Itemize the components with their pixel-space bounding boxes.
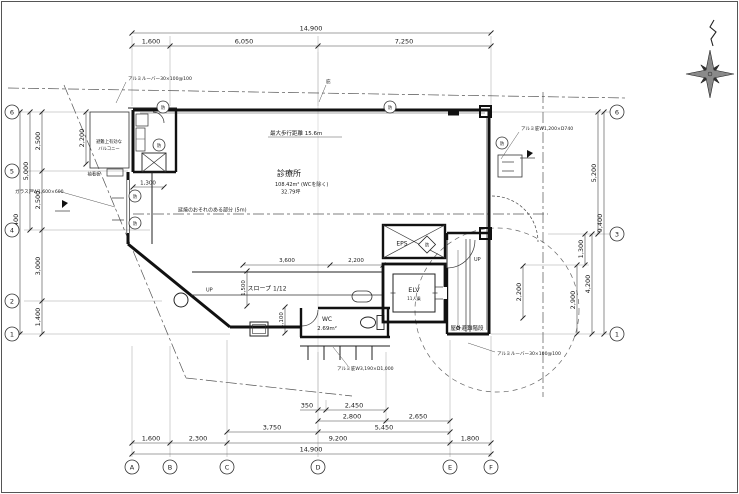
grid-bubbles: A B C D E F 6 5 4 2 1 6 3 1 bbox=[5, 105, 624, 474]
sink-basin bbox=[137, 116, 144, 123]
grid-bubble-b: B bbox=[168, 463, 172, 471]
wc-area: 2.69m² bbox=[317, 325, 337, 332]
grid-bubble-l5: 5 bbox=[10, 167, 14, 175]
dimension-left: 2,500 2,500 3,000 1,400 5,000 9,400 2,20… bbox=[12, 110, 89, 337]
cabinet bbox=[136, 128, 145, 151]
dim-top-total: 14,900 bbox=[300, 25, 323, 33]
wc-door-swing bbox=[302, 310, 318, 326]
glass-door-label: ガラス戸W1,600×600 bbox=[15, 188, 64, 195]
dim-l-2500a: 2,500 bbox=[34, 132, 42, 151]
exterior-walls bbox=[127, 106, 491, 334]
dim-b-9200: 9,200 bbox=[329, 435, 348, 443]
dim-b-2450: 2,450 bbox=[345, 402, 364, 410]
fire-mark: 防 bbox=[133, 220, 138, 227]
up-ramp-label: UP bbox=[206, 288, 213, 294]
dim-ramp-1500: 1,500 bbox=[241, 280, 247, 296]
dim-b-total: 14,900 bbox=[300, 446, 323, 454]
handrail bbox=[352, 291, 372, 302]
grid-bubble-l2: 2 bbox=[10, 297, 14, 305]
fire-mark: 防 bbox=[500, 140, 505, 147]
fire-mark: 防 bbox=[161, 104, 166, 111]
dim-top-1: 1,600 bbox=[142, 38, 161, 46]
exterior-door-swing bbox=[492, 196, 538, 242]
fire-mark: 防 bbox=[133, 193, 138, 200]
dim-b-2800: 2,800 bbox=[343, 413, 362, 421]
wc-room: WC 2.69m² bbox=[300, 308, 390, 337]
sleeve-sign-label: 袖看板 bbox=[88, 171, 102, 178]
grid-bubble-e: E bbox=[448, 463, 452, 471]
dim-top-2: 6,050 bbox=[235, 38, 254, 46]
door-swing bbox=[153, 112, 164, 123]
max-walking-label: 最大歩行距離 15.6m bbox=[270, 129, 322, 137]
dim-r-total: 9,400 bbox=[596, 214, 604, 233]
ramp-label: スロープ 1/12 bbox=[247, 286, 286, 293]
extension-lines bbox=[19, 36, 610, 457]
dim-b-1800: 1,800 bbox=[461, 435, 480, 443]
dimension-bottom: 350 2,450 2,800 2,650 3,750 5,450 1,600 … bbox=[130, 402, 494, 457]
dim-b-3750: 3,750 bbox=[263, 424, 282, 432]
clinic-area: 108.42m² (WCを除く) bbox=[275, 181, 328, 188]
dim-b-1600: 1,600 bbox=[142, 435, 161, 443]
grid-bubble-l4: 4 bbox=[10, 226, 14, 234]
round-column bbox=[174, 293, 188, 307]
dim-l-1400: 1,400 bbox=[34, 308, 42, 327]
dim-b-350: 350 bbox=[301, 402, 313, 410]
grid-bubble-r6: 6 bbox=[615, 108, 619, 116]
dim-l-5000: 5,000 bbox=[22, 162, 30, 181]
wc-label: WC bbox=[322, 316, 332, 323]
fire-spread-label: 延焼のおそれのある部分 (5m) bbox=[178, 207, 247, 214]
grid-bubble-a: A bbox=[130, 463, 135, 471]
floor-plan-drawing: 14,900 1,600 6,050 7,250 350 2,450 2,800… bbox=[0, 0, 739, 494]
dim-b-2650: 2,650 bbox=[409, 413, 428, 421]
elevator-label: ELV bbox=[408, 286, 420, 294]
dim-r-5200: 5,200 bbox=[590, 164, 598, 183]
sleeve-sign-symbol bbox=[107, 169, 123, 176]
eps-label: EPS bbox=[396, 241, 407, 248]
sheet-border bbox=[2, 2, 738, 493]
grid-bubble-f: F bbox=[489, 463, 493, 471]
floor-plan-sheet: 14,900 1,600 6,050 7,250 350 2,450 2,800… bbox=[0, 0, 739, 494]
balcony-label-1: 避難上有効な bbox=[96, 138, 122, 145]
grid-bubble-d: D bbox=[315, 463, 320, 471]
toilet-bowl bbox=[361, 317, 376, 328]
dim-porch-1100: 1,100 bbox=[279, 312, 285, 328]
dimension-top: 14,900 1,600 6,050 7,250 bbox=[130, 25, 494, 49]
grid-bubble-c: C bbox=[225, 463, 230, 471]
clinic-room: 診療所 108.42m² (WCを除く) 32.79坪 bbox=[275, 168, 328, 196]
grid-bubble-r3: 3 bbox=[615, 230, 619, 238]
turning-circle bbox=[415, 228, 579, 392]
dim-r-4200: 4,200 bbox=[584, 275, 592, 294]
canopy-east-label: アルミ庇W1,200×D740 bbox=[521, 125, 573, 132]
fire-mark: 防 bbox=[425, 242, 430, 249]
dim-b-2300: 2,300 bbox=[189, 435, 208, 443]
elevator: ELV 11人乗 bbox=[383, 264, 445, 322]
evacuation-balcony: 避難上有効な バルコニー 袖看板 bbox=[88, 112, 129, 178]
dim-stair-2200: 2,200 bbox=[515, 283, 523, 302]
elevator-capacity: 11人乗 bbox=[407, 295, 421, 302]
grid-bubble-l6: 6 bbox=[10, 108, 14, 116]
sink bbox=[136, 114, 148, 126]
clinic-tsubo: 32.79坪 bbox=[281, 189, 300, 196]
stair-door-swing bbox=[447, 240, 475, 268]
section-mark bbox=[527, 150, 533, 158]
eps-room: EPS 防 bbox=[383, 225, 445, 258]
louver-bottom-label: アルミルーバー30×100@100 bbox=[497, 351, 561, 357]
dim-top-3: 7,250 bbox=[395, 38, 414, 46]
section-mark-west bbox=[55, 200, 70, 211]
dim-ramp-2200: 2,200 bbox=[348, 258, 364, 264]
dim-l-3000: 3,000 bbox=[34, 257, 42, 276]
dim-r-2900: 2,900 bbox=[569, 291, 577, 310]
up-stairs-label: UP bbox=[474, 257, 481, 263]
dim-b-5450: 5,450 bbox=[375, 424, 394, 432]
dimension-right: 2,900 1,300 4,200 5,200 9,400 2,200 bbox=[515, 110, 607, 337]
dim-ramp-3600: 3,600 bbox=[279, 258, 295, 264]
dimension-inner: 1,300 3,600 2,200 1,500 1,100 bbox=[131, 181, 386, 336]
north-compass-icon bbox=[686, 14, 734, 98]
outdoor-stairs: UP 屋外避難階段 bbox=[447, 239, 486, 332]
stairs-label: 屋外避難階段 bbox=[450, 324, 484, 332]
dim-r-1300: 1,300 bbox=[577, 240, 585, 259]
canopy-south-label: アルミ庇W3,190×D1,000 bbox=[337, 365, 394, 372]
louver-top-label: アルミルーバー30×100@100 bbox=[128, 76, 192, 82]
fire-mark: 防 bbox=[157, 142, 162, 149]
grid-bubble-l1: 1 bbox=[10, 330, 14, 338]
balcony-label-2: バルコニー bbox=[98, 146, 119, 152]
eaves-label: 庇 bbox=[326, 78, 331, 85]
dim-balcony-2200: 2,200 bbox=[78, 129, 86, 148]
clinic-label: 診療所 bbox=[277, 168, 301, 178]
dim-room-1300: 1,300 bbox=[140, 181, 156, 187]
grid-bubble-r1: 1 bbox=[615, 330, 619, 338]
fire-mark: 防 bbox=[388, 104, 393, 111]
